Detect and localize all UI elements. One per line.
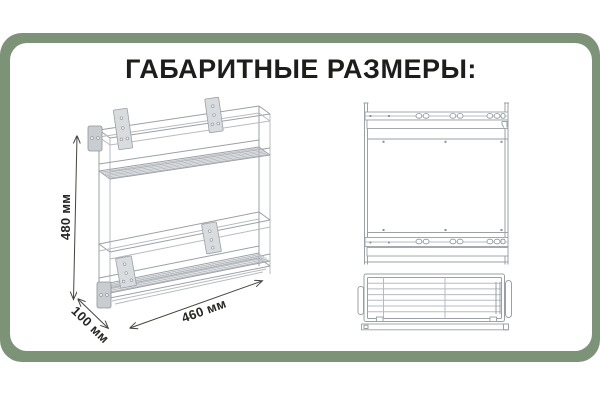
upper-basket-mesh <box>101 148 269 178</box>
mounting-plate <box>113 108 132 150</box>
dimension-height-label: 480 мм <box>58 185 74 249</box>
front-view-drawing <box>350 95 520 270</box>
page-title: ГАБАРИТНЫЕ РАЗМЕРЫ: <box>10 54 592 85</box>
top-view-drawing <box>355 270 515 334</box>
mounting-plate <box>205 97 224 133</box>
plan-wires <box>368 278 501 319</box>
end-bracket <box>88 126 102 151</box>
plan-frame <box>364 274 505 322</box>
plan-front-bar <box>362 324 509 330</box>
plan-brackets <box>358 281 512 322</box>
height-dimension-line <box>74 136 78 299</box>
dimensions-infographic: ГАБАРИТНЫЕ РАЗМЕРЫ: <box>0 0 600 400</box>
mounting-plate <box>116 256 137 288</box>
bottom-rail-assembly <box>365 229 508 262</box>
end-bracket <box>97 282 111 308</box>
top-rail-assembly <box>365 112 508 143</box>
